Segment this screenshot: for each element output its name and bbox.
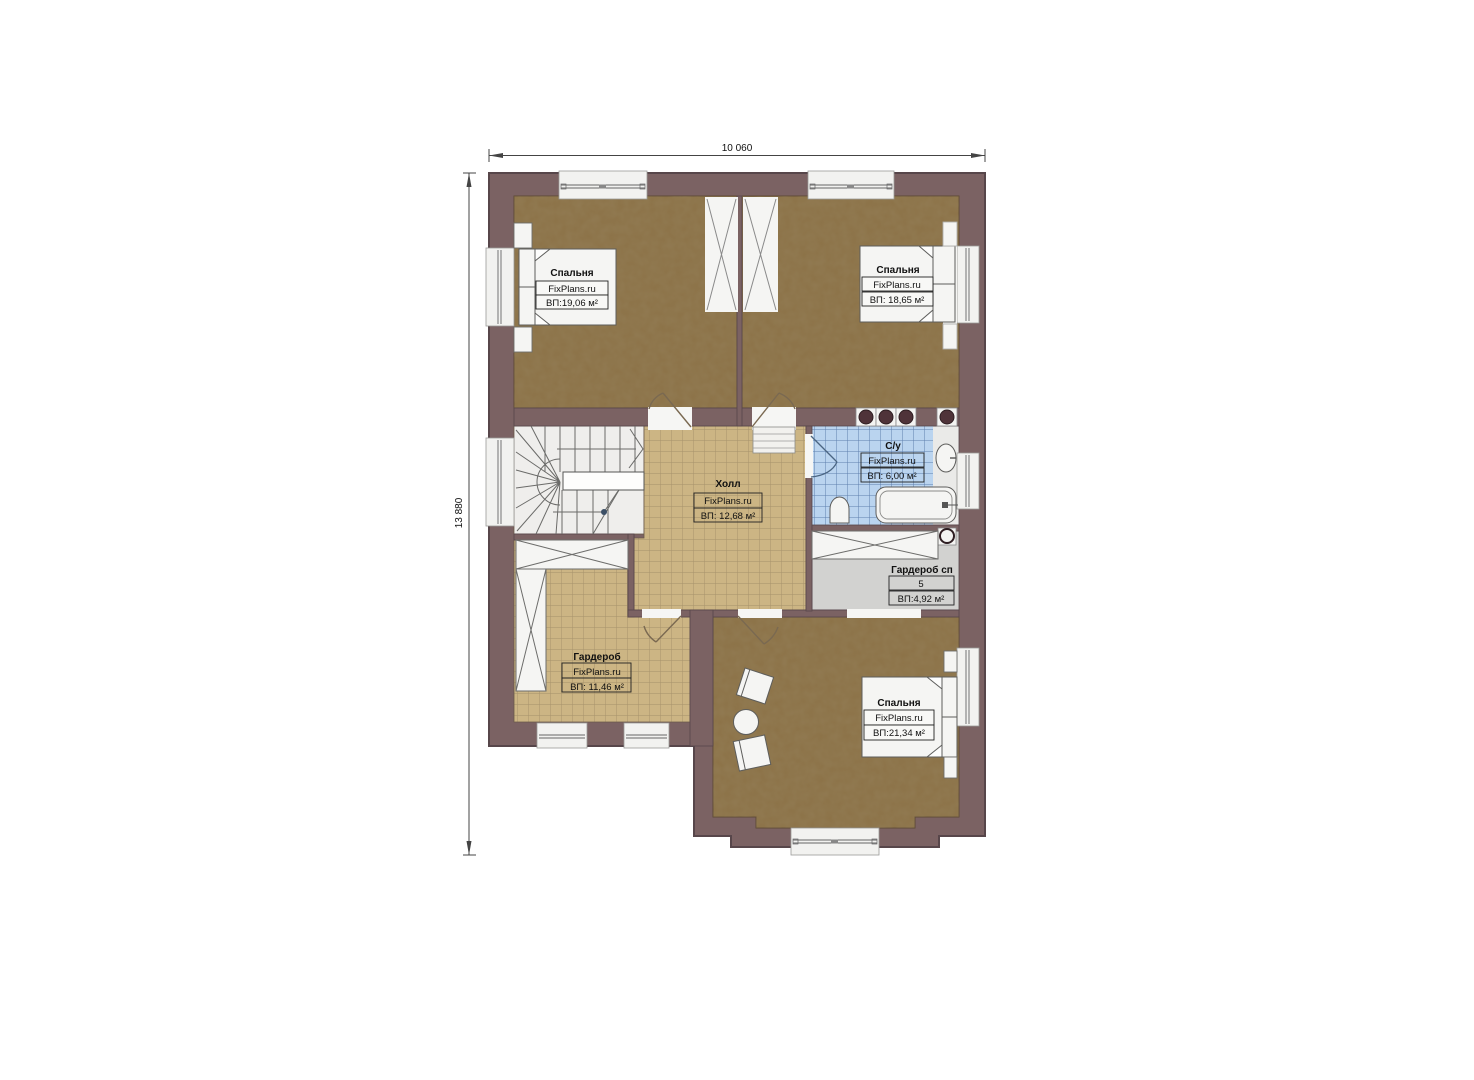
svg-text:ВП:4,92 м²: ВП:4,92 м² <box>898 594 945 605</box>
svg-text:Гардероб: Гардероб <box>573 651 620 663</box>
svg-text:Спальня: Спальня <box>876 265 919 276</box>
svg-text:ВП: 11,46 м²: ВП: 11,46 м² <box>570 682 624 693</box>
svg-text:13 880: 13 880 <box>454 497 465 528</box>
svg-text:10 060: 10 060 <box>722 143 753 154</box>
svg-text:С/у: С/у <box>885 441 901 452</box>
svg-text:Спальня: Спальня <box>550 268 593 279</box>
svg-text:FixPlans.ru: FixPlans.ru <box>875 713 923 724</box>
svg-text:ВП: 6,00 м²: ВП: 6,00 м² <box>867 471 916 482</box>
svg-text:ВП: 18,65 м²: ВП: 18,65 м² <box>870 295 925 306</box>
svg-text:ВП:21,34 м²: ВП:21,34 м² <box>873 728 925 739</box>
svg-text:Холл: Холл <box>715 479 740 490</box>
svg-text:FixPlans.ru: FixPlans.ru <box>868 456 916 467</box>
svg-text:ВП:19,06 м²: ВП:19,06 м² <box>546 298 598 309</box>
svg-text:Спальня: Спальня <box>877 698 920 709</box>
svg-text:FixPlans.ru: FixPlans.ru <box>548 284 596 295</box>
svg-text:FixPlans.ru: FixPlans.ru <box>573 667 621 678</box>
svg-text:FixPlans.ru: FixPlans.ru <box>704 496 752 507</box>
svg-text:FixPlans.ru: FixPlans.ru <box>873 280 921 291</box>
svg-text:5: 5 <box>918 579 923 590</box>
svg-text:Гардероб сп: Гардероб сп <box>891 564 953 576</box>
svg-text:ВП: 12,68 м²: ВП: 12,68 м² <box>701 511 756 522</box>
